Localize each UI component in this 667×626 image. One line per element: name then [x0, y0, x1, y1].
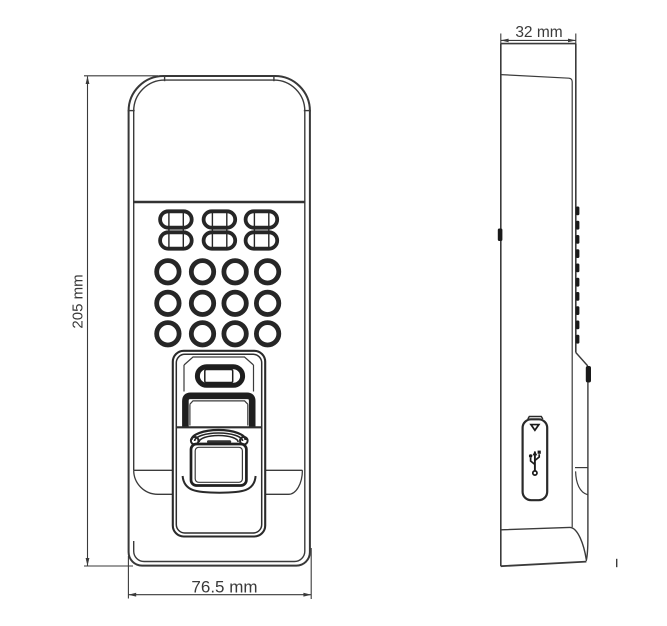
svg-text:205 mm: 205 mm: [70, 274, 87, 328]
svg-text:76.5 mm: 76.5 mm: [191, 578, 257, 597]
svg-text:32 mm: 32 mm: [515, 24, 562, 41]
